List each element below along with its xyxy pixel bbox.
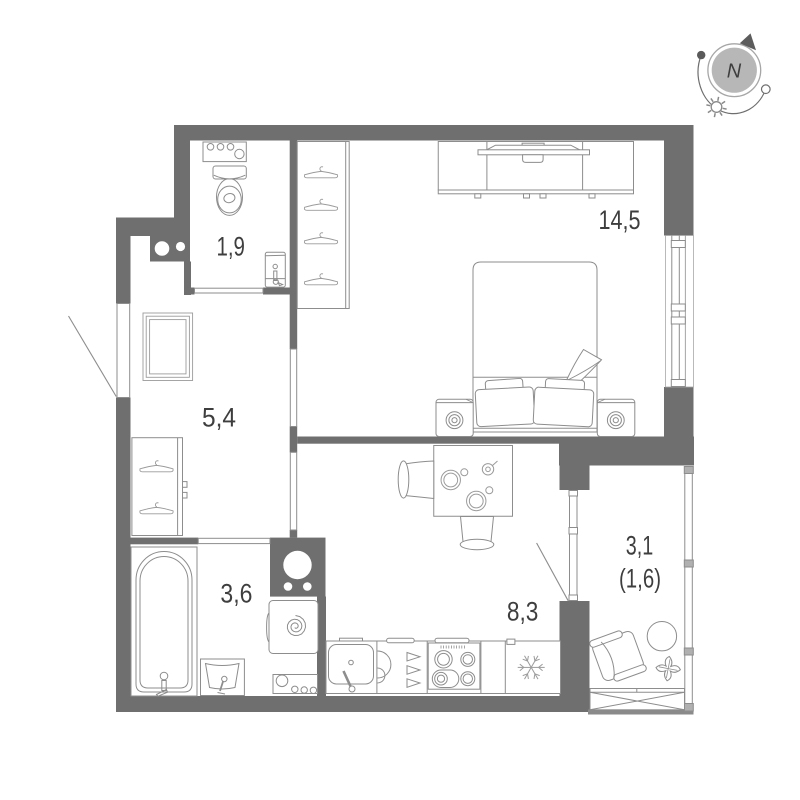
svg-text:5,4: 5,4: [202, 402, 236, 432]
svg-text:14,5: 14,5: [599, 205, 641, 235]
svg-text:3,1: 3,1: [626, 531, 654, 561]
svg-text:1,9: 1,9: [216, 232, 245, 262]
svg-text:(1,6): (1,6): [619, 563, 661, 593]
svg-text:8,3: 8,3: [507, 597, 539, 627]
svg-text:3,6: 3,6: [220, 579, 252, 609]
svg-text:N: N: [727, 61, 742, 83]
